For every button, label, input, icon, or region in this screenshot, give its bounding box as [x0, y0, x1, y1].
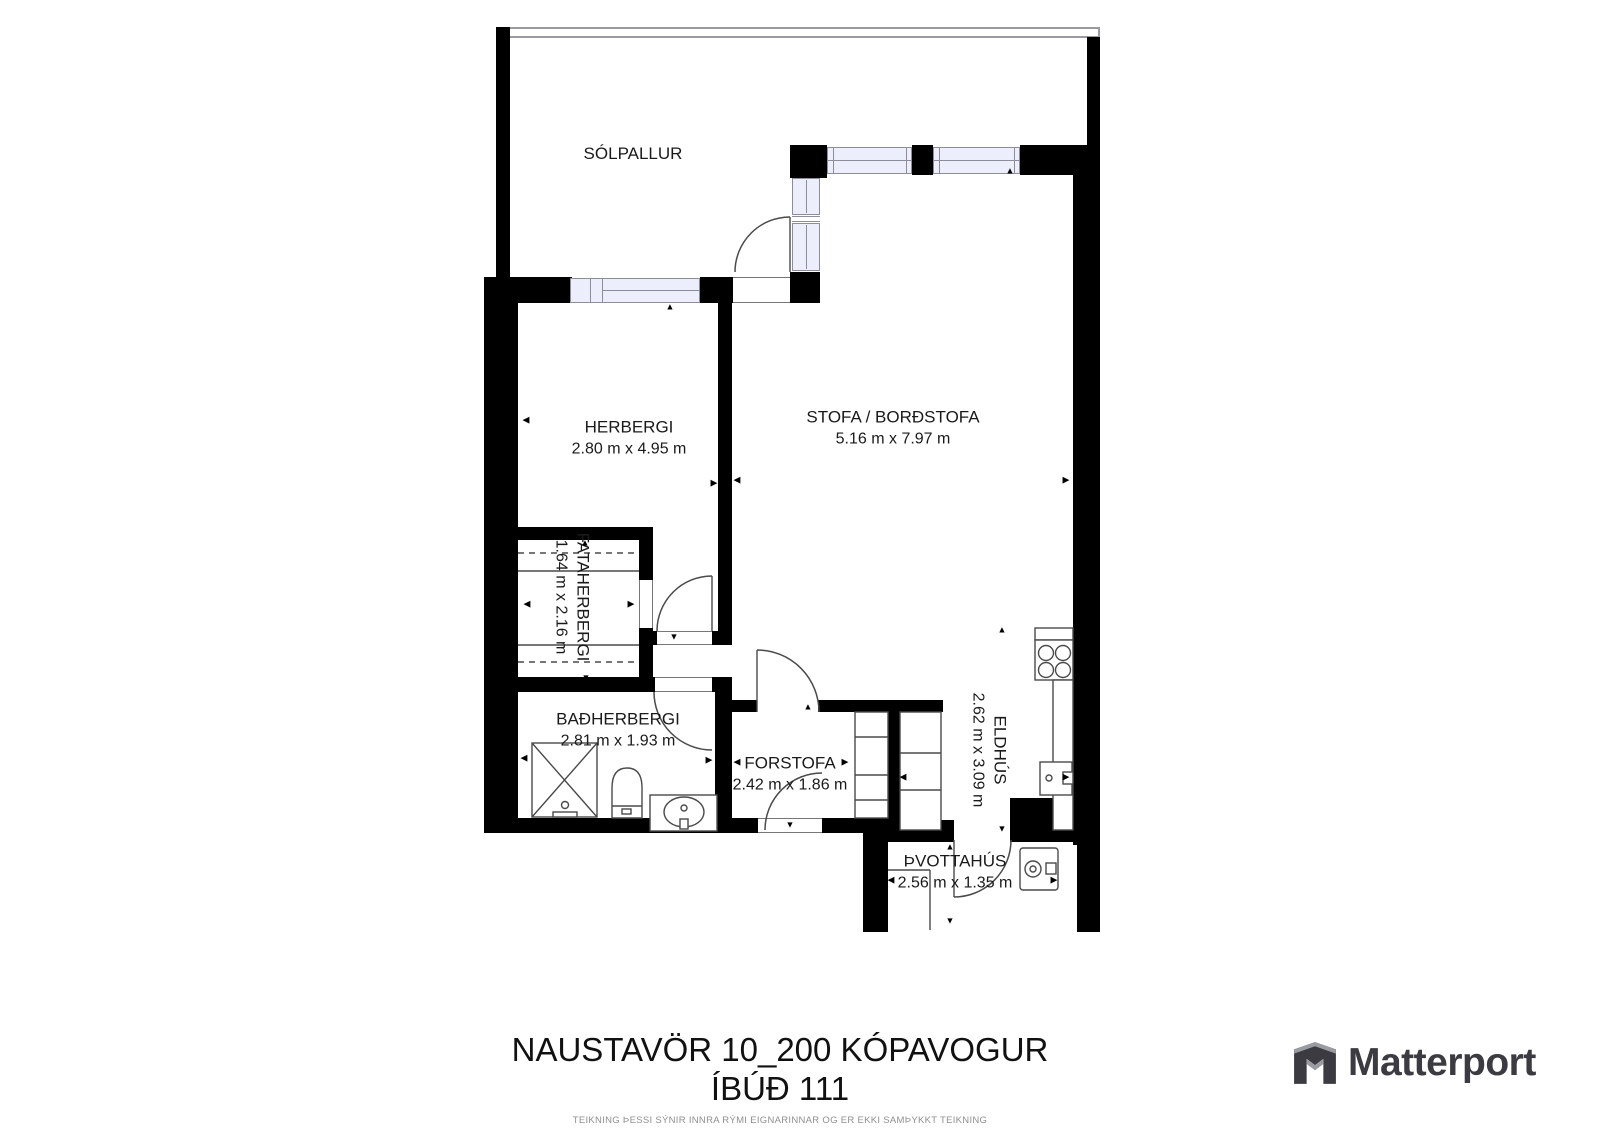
fixture-circle: [681, 805, 687, 811]
left-arrow-marker: ◀: [734, 758, 741, 767]
room-label-eldhus: ELDHÚS2.62 m x 3.09 m: [968, 693, 1011, 808]
room-name: FATAHERBERGI: [572, 533, 594, 662]
room-name: ELDHÚS: [989, 693, 1011, 808]
fixture-rect: [1046, 863, 1056, 874]
fixture-rect: [1035, 628, 1073, 640]
fixture-circle: [1030, 866, 1036, 872]
fixture-rect: [553, 812, 577, 817]
room-label-badherbergi: BAÐHERBERGI2.81 m x 1.93 m: [556, 709, 680, 752]
right-arrow-marker: ▶: [1063, 476, 1070, 485]
left-arrow-marker: ◀: [523, 416, 530, 425]
floor-plan: SÓLPALLURHERBERGI2.80 m x 4.95 mSTOFA / …: [0, 0, 1600, 1131]
up-arrow-marker: ▲: [581, 539, 590, 548]
fixture-circle: [1056, 663, 1071, 678]
fixture-circle: [1039, 663, 1054, 678]
up-arrow-marker: ▲: [998, 626, 1007, 635]
left-arrow-marker: ◀: [521, 754, 528, 763]
room-label-solpallur: SÓLPALLUR: [584, 143, 683, 165]
matterport-logo: Matterport: [1292, 1040, 1536, 1086]
fixture-rect: [855, 712, 888, 818]
fixture-rect: [622, 809, 631, 814]
door-swing-arc: [735, 217, 790, 272]
room-dimensions: 2.80 m x 4.95 m: [572, 439, 687, 460]
room-dimensions: 1.64 m x 2.16 m: [551, 533, 572, 662]
room-name: HERBERGI: [572, 417, 687, 439]
left-arrow-marker: ◀: [888, 876, 895, 885]
fixture-circle: [1039, 646, 1054, 661]
left-arrow-marker: ◀: [734, 476, 741, 485]
right-arrow-marker: ▶: [842, 758, 849, 767]
room-label-fataherbergi: FATAHERBERGI1.64 m x 2.16 m: [551, 533, 594, 662]
room-dimensions: 2.56 m x 1.35 m: [898, 873, 1013, 894]
fixture-circle: [1056, 646, 1071, 661]
fixture-rect: [1053, 680, 1073, 830]
apartment-subtitle: ÍBÚÐ 111: [512, 1070, 1049, 1108]
down-arrow-marker: ▼: [998, 825, 1007, 834]
room-name: BAÐHERBERGI: [556, 709, 680, 731]
room-name: ÞVOTTAHÚS: [898, 851, 1013, 873]
room-dimensions: 2.42 m x 1.86 m: [733, 775, 848, 796]
plan-drawing-layer: [0, 0, 1600, 1131]
fixture-circle: [562, 802, 569, 809]
room-dimensions: 2.81 m x 1.93 m: [556, 731, 680, 752]
up-arrow-marker: ▲: [946, 843, 955, 852]
up-arrow-marker: ▲: [1006, 167, 1015, 176]
right-arrow-marker: ▶: [1051, 876, 1058, 885]
room-label-thvottahus: ÞVOTTAHÚS2.56 m x 1.35 m: [898, 851, 1013, 894]
right-arrow-marker: ▶: [706, 756, 713, 765]
room-label-stofa: STOFA / BORÐSTOFA5.16 m x 7.97 m: [806, 407, 979, 450]
right-arrow-marker: ▶: [711, 479, 718, 488]
door-swing-arc: [657, 576, 712, 631]
address-title: NAUSTAVÖR 10_200 KÓPAVOGUR: [512, 1030, 1049, 1070]
right-arrow-marker: ▶: [628, 600, 635, 609]
room-dimensions: 2.62 m x 3.09 m: [968, 693, 989, 808]
down-arrow-marker: ▼: [786, 821, 795, 830]
room-label-herbergi: HERBERGI2.80 m x 4.95 m: [572, 417, 687, 460]
room-name: SÓLPALLUR: [584, 143, 683, 165]
room-name: FORSTOFA: [733, 753, 848, 775]
matterport-wordmark: Matterport: [1348, 1041, 1536, 1085]
room-name: STOFA / BORÐSTOFA: [806, 407, 979, 429]
right-arrow-marker: ▶: [1063, 773, 1070, 782]
room-dimensions: 5.16 m x 7.97 m: [806, 429, 979, 450]
fixture-rect: [680, 819, 688, 829]
left-arrow-marker: ◀: [900, 773, 907, 782]
disclaimer-text: TEIKNING ÞESSI SÝNIR INNRA RÝMI EIGNARIN…: [512, 1115, 1049, 1127]
floor-plan-page: SÓLPALLURHERBERGI2.80 m x 4.95 mSTOFA / …: [0, 0, 1600, 1131]
up-arrow-marker: ▲: [666, 303, 675, 312]
left-arrow-marker: ◀: [524, 600, 531, 609]
down-arrow-marker: ▼: [582, 674, 591, 683]
title-block: NAUSTAVÖR 10_200 KÓPAVOGUR ÍBÚÐ 111 TEIK…: [512, 1030, 1049, 1127]
up-arrow-marker: ▲: [804, 703, 813, 712]
matterport-cube-icon: [1292, 1040, 1338, 1086]
fixture-circle: [1046, 775, 1052, 781]
room-label-forstofa: FORSTOFA2.42 m x 1.86 m: [733, 753, 848, 796]
down-arrow-marker: ▼: [946, 917, 955, 926]
down-arrow-marker: ▼: [670, 633, 679, 642]
